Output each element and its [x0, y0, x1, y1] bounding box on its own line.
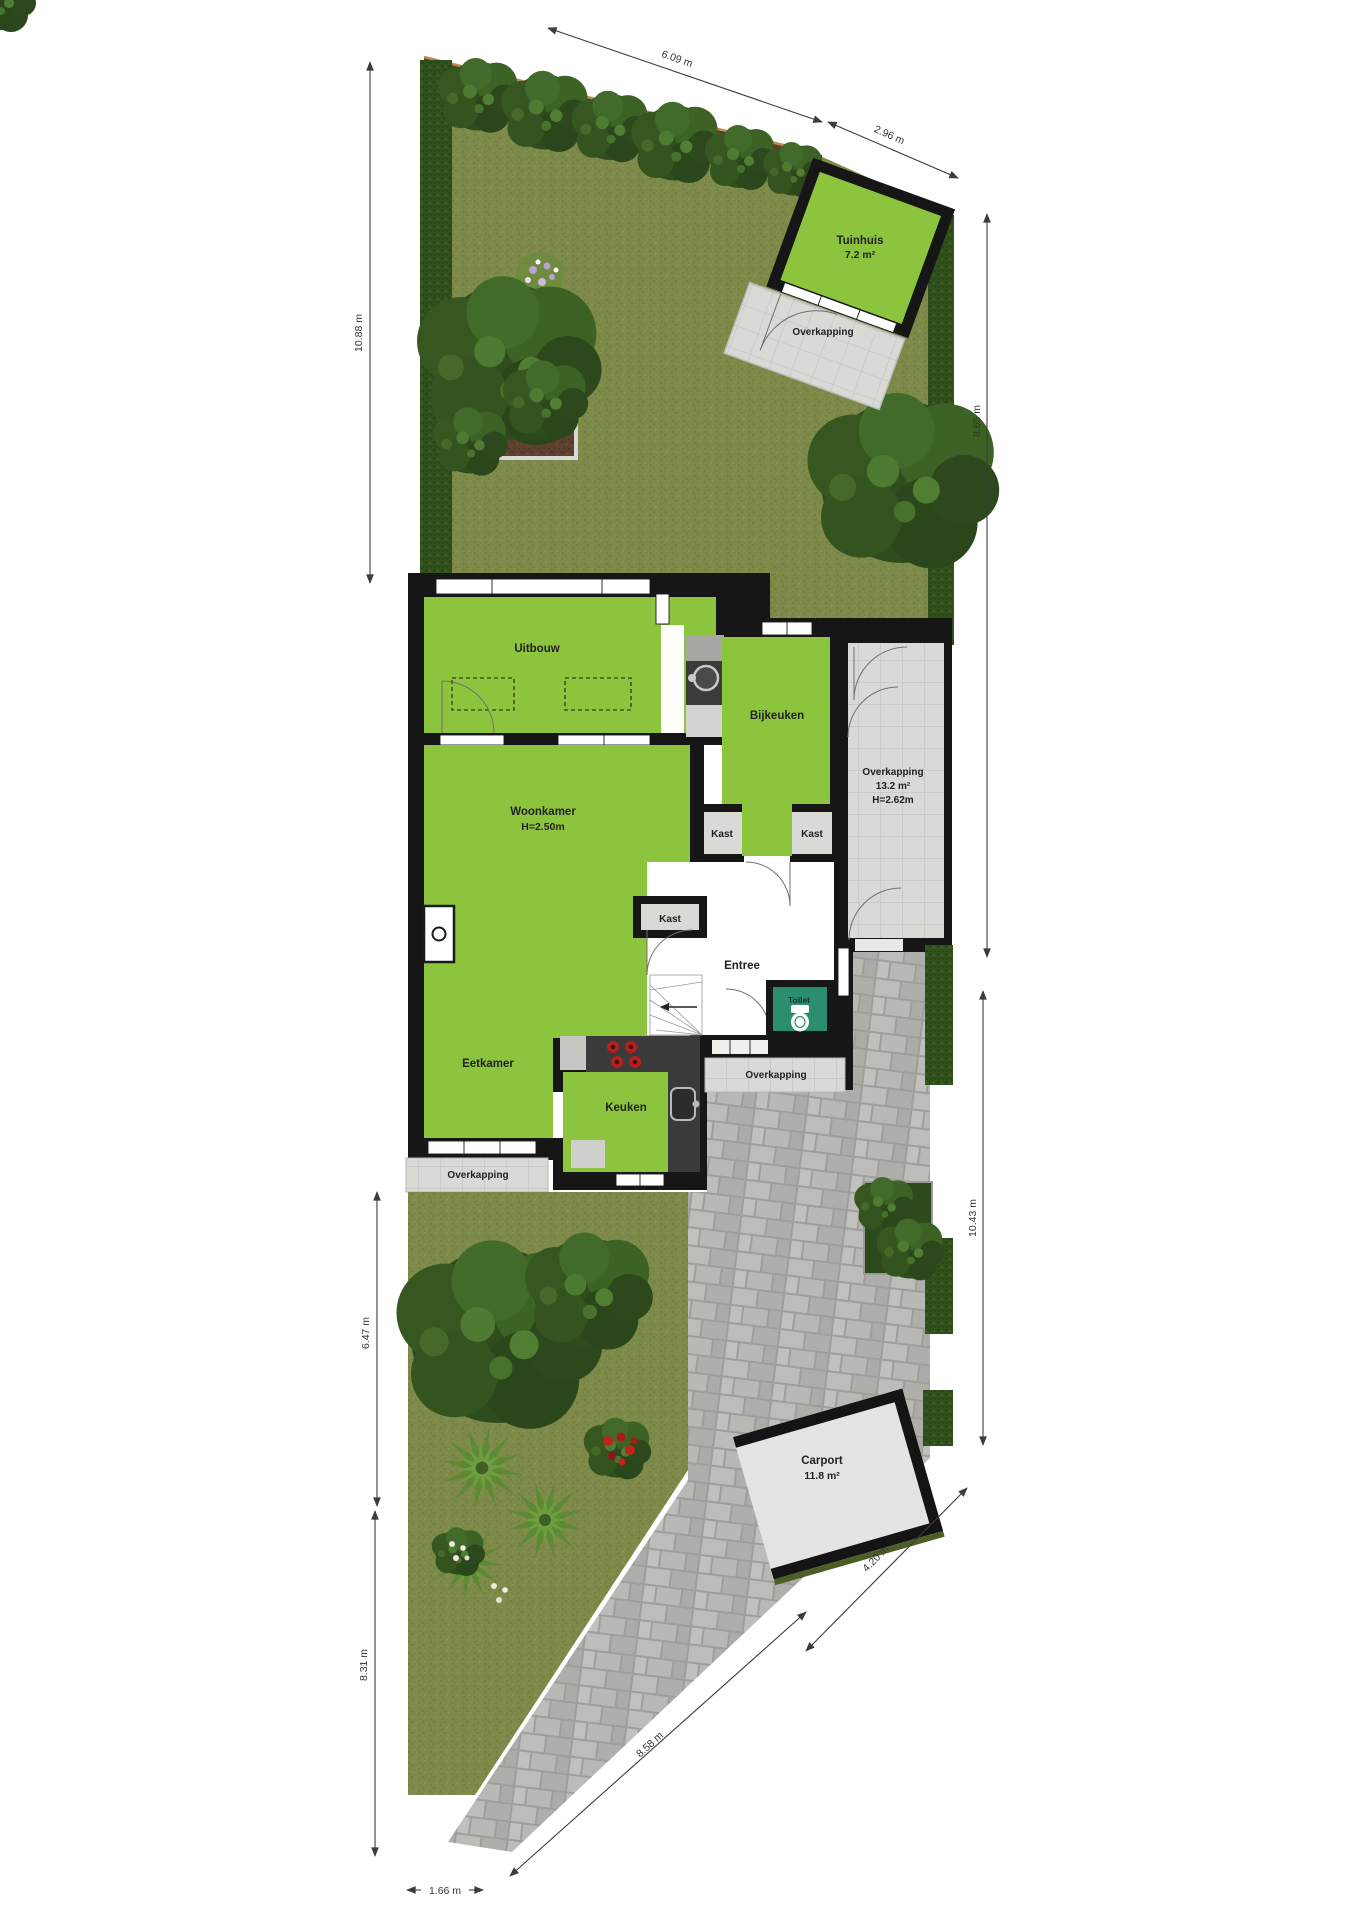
- kast-rechts-label: Kast: [801, 829, 823, 840]
- dim-front-left-upper: 6.47 m: [360, 1317, 372, 1349]
- sink-icon: [671, 1088, 695, 1120]
- uitbouw-label: Uitbouw: [514, 643, 559, 655]
- passage: [742, 804, 792, 856]
- red-flower-bush: [584, 1418, 651, 1480]
- planter-bed: [417, 276, 602, 475]
- kast-hal-label: Kast: [659, 914, 681, 925]
- sink-icon: [694, 666, 718, 690]
- hedge-right-1: [925, 945, 953, 1085]
- entree-label: Entree: [724, 960, 760, 972]
- eetkamer-label: Eetkamer: [462, 1058, 514, 1070]
- keuken-label: Keuken: [605, 1102, 647, 1114]
- tuinhuis-area: 7.2 m²: [845, 249, 876, 261]
- overkapping-entree-label: Overkapping: [745, 1070, 806, 1081]
- tuinhuis-overkapping-label: Overkapping: [792, 327, 853, 338]
- hedge-right-3: [923, 1390, 953, 1446]
- carport-area: 11.8 m²: [804, 1470, 840, 1482]
- dim-front-right: 10.43 m: [967, 1199, 979, 1237]
- tree-icon: [525, 1233, 653, 1350]
- floorplan-drawing: Tuinhuis 7.2 m² Overkapping: [0, 0, 1358, 1920]
- dim-bottom-width: 1.66 m: [429, 1885, 461, 1897]
- front-door: [712, 1040, 768, 1054]
- passage: [704, 745, 722, 804]
- overkapping-zij-height: H=2.62m: [872, 795, 914, 806]
- window: [440, 735, 504, 745]
- room-bijkeuken: [722, 637, 830, 813]
- floorplan: Tuinhuis 7.2 m² Overkapping: [0, 0, 1358, 1920]
- toilet-icon: [791, 1005, 809, 1032]
- door-opening: [855, 939, 903, 951]
- carport-label: Carport: [801, 1455, 843, 1467]
- overkapping-zij-area: 13.2 m²: [876, 781, 911, 792]
- stairs: [650, 975, 702, 1035]
- planter-box: [854, 1177, 944, 1280]
- room-eetkamer: [424, 1038, 553, 1138]
- flue-icon: [433, 928, 446, 941]
- window: [838, 948, 849, 996]
- bijkeuken-label: Bijkeuken: [750, 710, 804, 722]
- dim-back-left: 10.88 m: [353, 314, 365, 352]
- tuinhuis-label: Tuinhuis: [836, 235, 883, 247]
- door-opening: [744, 856, 790, 862]
- kast-links-label: Kast: [711, 829, 733, 840]
- window: [428, 1141, 536, 1154]
- toilet-label: Toilet: [788, 995, 810, 1005]
- passage: [661, 625, 684, 733]
- opening: [553, 1092, 563, 1138]
- dim-front-left-lower: 8.31 m: [358, 1649, 370, 1681]
- woonkamer-label: Woonkamer: [510, 806, 576, 818]
- overkapping-zij-label: Overkapping: [862, 767, 923, 778]
- overkapping-eetkamer-label: Overkapping: [447, 1170, 508, 1181]
- dim-back-right: 8.65 m: [971, 405, 983, 437]
- window: [656, 594, 669, 624]
- woonkamer-height: H=2.50m: [521, 821, 565, 833]
- window: [436, 579, 650, 594]
